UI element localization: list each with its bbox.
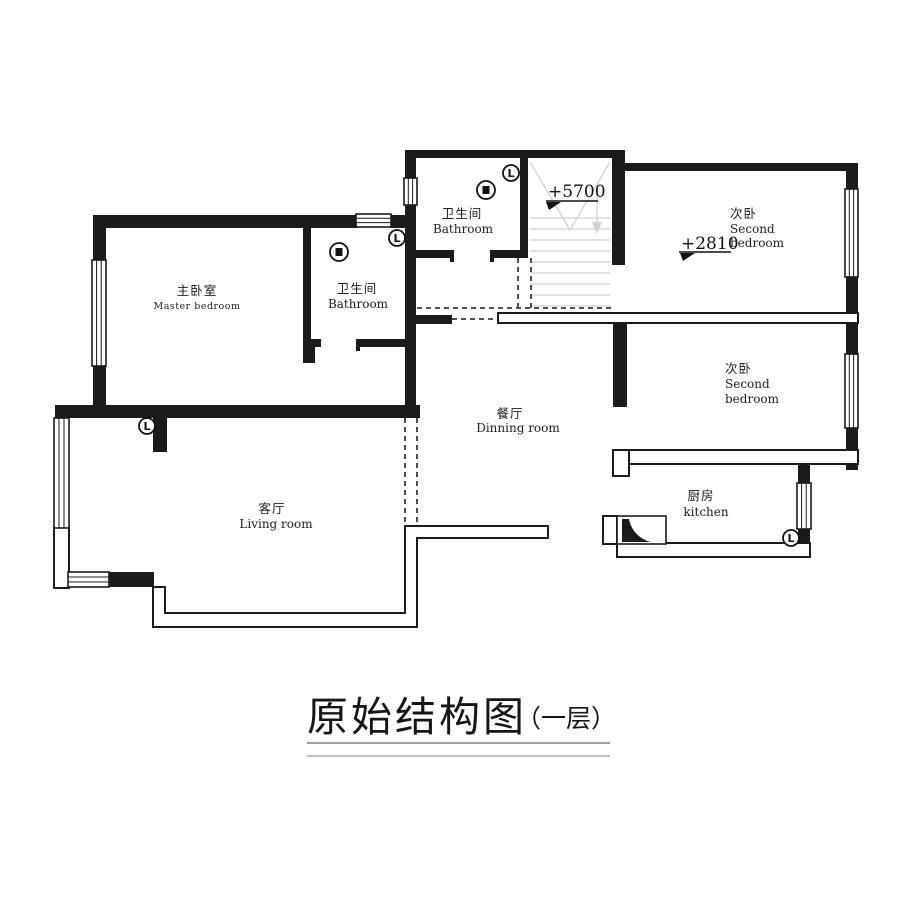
wall-segment — [498, 313, 858, 323]
ceiling-lamp-icon — [330, 243, 348, 261]
room-label-living-en: Living room — [239, 517, 313, 531]
wall-segment — [390, 215, 416, 228]
wall-segment — [613, 450, 858, 464]
room-label-kitchen-zh: 厨房 — [687, 488, 714, 503]
room-label-dining-zh: 餐厅 — [496, 406, 523, 421]
svg-text:L: L — [143, 420, 150, 433]
wall-segment — [153, 526, 548, 627]
window-symbol — [92, 260, 106, 366]
svg-text:L: L — [393, 232, 400, 245]
wall-segment — [492, 250, 528, 258]
room-label-master-zh: 主卧室 — [177, 283, 218, 298]
room-label-bedroom1-en2: bedroom — [730, 236, 785, 250]
wall-segment — [405, 158, 416, 179]
room-label-bathroom-master-zh: 卫生间 — [337, 281, 378, 296]
wall-segment — [416, 250, 454, 258]
drawing-title-suffix: （一层） — [516, 704, 616, 733]
room-label-bathroom-top-en: Bathroom — [433, 222, 494, 236]
room-label-bedroom2-en1: Second — [725, 377, 770, 391]
wall-segment — [613, 450, 629, 476]
room-label-bedroom1-en1: Second — [730, 222, 775, 236]
wall-segment — [303, 215, 357, 228]
wall-segment — [846, 171, 858, 190]
switch-icon: L — [503, 165, 519, 181]
wall-segment — [303, 339, 315, 363]
wall-segment — [603, 516, 617, 544]
wall-segment — [798, 464, 810, 484]
window-symbol — [404, 178, 417, 205]
wall-segment — [303, 228, 311, 347]
wall-segment — [612, 150, 625, 265]
wall-segment — [356, 339, 416, 347]
elevation-triangle — [546, 202, 561, 210]
room-label-kitchen-en: kitchen — [683, 505, 728, 519]
window-symbol — [845, 189, 858, 277]
wall-segment — [625, 163, 858, 171]
room-label-bedroom2-zh: 次卧 — [725, 361, 752, 376]
wall-segment — [93, 215, 310, 228]
room-label-bathroom-master-en: Bathroom — [328, 297, 389, 311]
wall-segment — [613, 323, 627, 407]
window-symbol — [54, 418, 69, 528]
wall-segment — [55, 405, 420, 418]
wall-segment — [93, 365, 106, 407]
wall-segment — [405, 204, 416, 418]
wall-segment — [520, 158, 528, 252]
floor-plan-svg: L L L L +5700 +2810 卫生间 Bathroom 主卧室 Mas… — [0, 0, 900, 900]
drawing-title: 原始结构图 — [307, 693, 527, 741]
room-label-bedroom2-en2: bedroom — [725, 392, 780, 406]
stair-direction-arrow — [592, 222, 602, 234]
elevation-triangle — [680, 253, 695, 261]
title-block: 原始结构图 （一层） — [307, 693, 616, 756]
wall-segment — [415, 315, 452, 324]
window-jamb-block — [54, 527, 69, 588]
elevation-value: +5700 — [548, 182, 606, 202]
svg-text:L: L — [787, 532, 794, 545]
room-label-dining-en: Dinning room — [476, 421, 560, 435]
window-symbol — [845, 354, 858, 428]
wall-segment — [405, 150, 625, 158]
switch-icon: L — [389, 230, 405, 246]
room-label-bedroom1-zh: 次卧 — [730, 206, 757, 221]
window-symbol — [797, 483, 811, 529]
svg-text:L: L — [507, 167, 514, 180]
ceiling-lamp-icon — [477, 181, 495, 199]
door-jamb — [450, 250, 454, 262]
room-label-living-zh: 客厅 — [258, 501, 285, 516]
room-label-master-en: Master bedroom — [153, 301, 240, 312]
floor-plan-page: L L L L +5700 +2810 卫生间 Bathroom 主卧室 Mas… — [0, 0, 900, 900]
door-jamb — [356, 339, 360, 351]
wall-segment — [617, 543, 810, 557]
wall-segment — [93, 228, 106, 261]
wall-segment — [108, 572, 154, 587]
window-symbol — [356, 214, 391, 227]
switch-icon: L — [783, 530, 799, 546]
door-jamb — [490, 250, 494, 262]
switch-icon: L — [139, 418, 155, 434]
demolition-dashed-lines — [405, 258, 612, 526]
room-label-bathroom-top-zh: 卫生间 — [442, 206, 483, 221]
window-symbol — [68, 572, 109, 587]
